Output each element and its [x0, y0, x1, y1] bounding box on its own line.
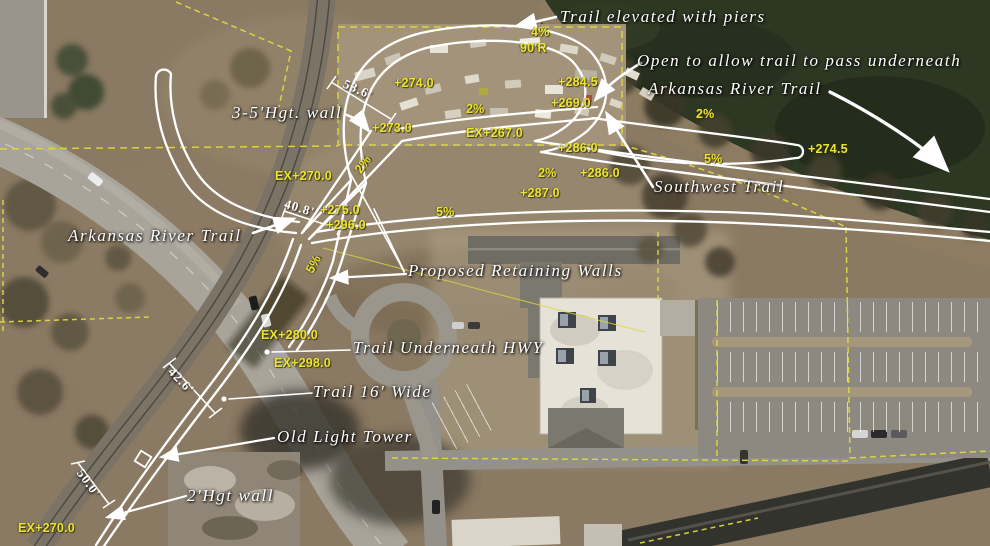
trail-plan-screenshot: Trail elevated with piersOpen to allow t…	[0, 0, 990, 546]
dim-40-8: 40.8'	[282, 196, 317, 220]
grade-2pct-a: 2%	[466, 102, 484, 116]
elev-ex-270-0-b: EX+270.0	[18, 521, 75, 535]
grade-2pct-c: 2%	[538, 166, 556, 180]
elev-ex-298-0: EX+298.0	[274, 356, 331, 370]
elev-ex-267-0: EX+267.0	[466, 126, 523, 140]
dim-50-0: 50.0'	[73, 466, 104, 501]
label-trail-16-wide: Trail 16' Wide	[313, 382, 432, 402]
grade-4pct: 4%	[531, 25, 549, 39]
label-old-light-tower: Old Light Tower	[277, 427, 413, 447]
elev-plus-274-0: +274.0	[394, 76, 434, 90]
elev-plus-273-0: +273.0	[372, 121, 412, 135]
label-arkansas-river-trail-ne: Arkansas River Trail	[648, 79, 822, 99]
label-open-to-allow-underpass: Open to allow trail to pass underneath	[637, 51, 961, 71]
elev-plus-274-5: +274.5	[808, 142, 848, 156]
grade-5pct-c: 5%	[303, 253, 324, 276]
radius-90r: 90'R	[520, 41, 547, 55]
grade-2pct-b: 2%	[696, 107, 714, 121]
elev-ex-280-0: EX+280.0	[261, 328, 318, 342]
label-southwest-trail: Southwest Trail	[654, 177, 784, 197]
elev-plus-269-0: +269.0	[551, 96, 591, 110]
annotation-labels: Trail elevated with piersOpen to allow t…	[0, 0, 990, 546]
label-2-hgt-wall: 2'Hgt wall	[187, 486, 274, 506]
grade-2pct-d: 2%	[352, 153, 374, 176]
grade-5pct-a: 5%	[704, 152, 722, 166]
label-arkansas-river-trail-w: Arkansas River Trail	[68, 226, 242, 246]
label-3-5-hgt-wall: 3-5'Hgt. wall	[232, 103, 342, 123]
label-trail-underneath-hwy: Trail Underneath HWY	[353, 338, 544, 358]
elev-plus-296-0: +296.0	[326, 218, 366, 232]
dim-53-6: 53.6'	[340, 76, 375, 103]
elev-plus-286-0-a: +286.0	[558, 141, 598, 155]
elev-plus-275-0: +275.0	[320, 203, 360, 217]
label-proposed-retaining-walls: Proposed Retaining Walls	[408, 261, 623, 281]
grade-5pct-b: 5%	[436, 205, 454, 219]
dim-42-6: 42.6'	[164, 364, 197, 398]
elev-ex-270-0-a: EX+270.0	[275, 169, 332, 183]
elev-plus-287-0: +287.0	[520, 186, 560, 200]
elev-plus-284-5: +284.5	[558, 75, 598, 89]
elev-plus-286-0-b: +286.0	[580, 166, 620, 180]
label-trail-elevated-with-piers: Trail elevated with piers	[560, 7, 766, 27]
